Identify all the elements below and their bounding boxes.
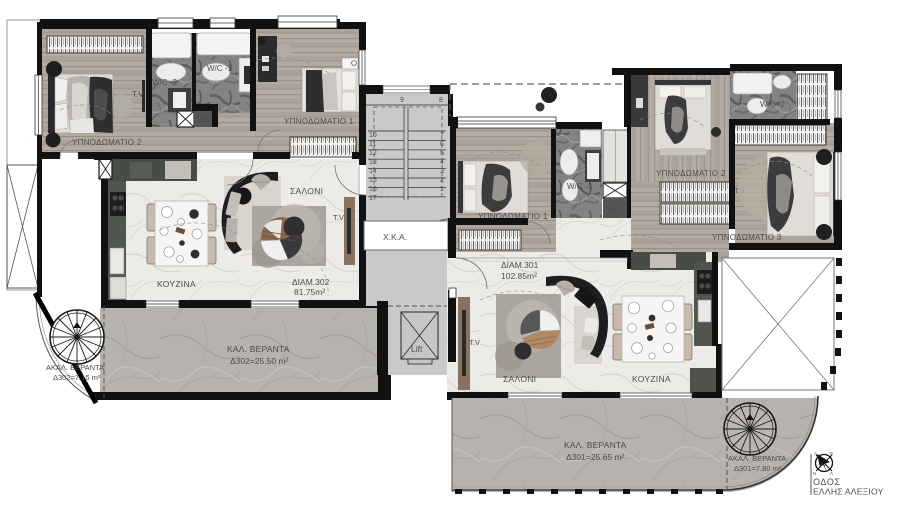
svg-text:ΥΠΝΟΔΩΜΑΤΙΟ 2: ΥΠΝΟΔΩΜΑΤΙΟ 2 — [656, 169, 726, 178]
svg-text:ΣΑΛΟΝΙ: ΣΑΛΟΝΙ — [503, 374, 536, 384]
svg-text:8: 8 — [439, 97, 443, 104]
svg-text:Lift: Lift — [411, 344, 423, 354]
svg-text:ΚΟΥΖΙΝΑ: ΚΟΥΖΙΝΑ — [632, 374, 671, 384]
svg-text:1: 1 — [440, 186, 444, 193]
svg-text:W.M: W.M — [198, 117, 211, 124]
svg-text:ΥΠΝΟΔΩΜΑΤΙΟ 1: ΥΠΝΟΔΩΜΑΤΙΟ 1 — [284, 117, 354, 126]
svg-text:W/C -2: W/C -2 — [760, 100, 785, 109]
svg-text:W/M: W/M — [607, 206, 620, 213]
svg-text:W/C -2: W/C -2 — [152, 78, 177, 87]
svg-text:ΔΙΑΜ.301: ΔΙΑΜ.301 — [501, 260, 539, 270]
svg-text:W/C -1: W/C -1 — [567, 182, 592, 191]
svg-text:14: 14 — [369, 168, 377, 175]
svg-text:10: 10 — [369, 132, 377, 139]
svg-text:W/C -1: W/C -1 — [207, 64, 232, 73]
svg-text:ΚΑΛ. ΒΕΡΑΝΤΑ: ΚΑΛ. ΒΕΡΑΝΤΑ — [564, 440, 627, 450]
svg-text:Δ302=25.50 m²: Δ302=25.50 m² — [230, 356, 289, 366]
svg-text:ΑΚΑΛ. ΒΕΡΑΝΤΑ: ΑΚΑΛ. ΒΕΡΑΝΤΑ — [728, 454, 786, 463]
svg-text:Χ.Κ.Α.: Χ.Κ.Α. — [383, 232, 407, 242]
svg-text:T.V: T.V — [333, 213, 344, 222]
svg-text:ΥΠΝΟΔΩΜΑΤΙΟ 3: ΥΠΝΟΔΩΜΑΤΙΟ 3 — [712, 233, 782, 242]
svg-text:Δ301=7.80 m²: Δ301=7.80 m² — [734, 464, 782, 473]
svg-text:B: B — [830, 451, 833, 456]
svg-text:T.V: T.V — [469, 338, 480, 347]
svg-text:3: 3 — [440, 168, 444, 175]
svg-text:81.75m²: 81.75m² — [294, 287, 325, 297]
svg-text:17: 17 — [369, 195, 377, 202]
svg-text:11: 11 — [369, 141, 376, 148]
svg-text:4: 4 — [440, 159, 444, 166]
svg-text:ΔΙΑΜ.302: ΔΙΑΜ.302 — [292, 277, 330, 287]
svg-text:15: 15 — [369, 177, 377, 184]
svg-text:Δ301=25.65 m²: Δ301=25.65 m² — [566, 452, 625, 462]
svg-text:ΑΚΑΛ. ΒΕΡΑΝΤΑ: ΑΚΑΛ. ΒΕΡΑΝΤΑ — [46, 363, 104, 372]
svg-text:5: 5 — [440, 150, 444, 157]
svg-text:12: 12 — [369, 150, 377, 157]
svg-text:102.85m²: 102.85m² — [501, 271, 537, 281]
svg-text:2: 2 — [440, 177, 444, 184]
svg-text:ΚΟΥΖΙΝΑ: ΚΟΥΖΙΝΑ — [157, 279, 196, 289]
svg-text:T.V: T.V — [132, 90, 144, 99]
svg-text:ΟΔΟΣ: ΟΔΟΣ — [813, 477, 841, 487]
svg-text:Δ302=7.15 m²: Δ302=7.15 m² — [53, 373, 101, 382]
svg-text:6: 6 — [440, 141, 444, 148]
svg-text:7: 7 — [440, 132, 444, 139]
svg-text:ΥΠΝΟΔΩΜΑΤΙΟ 2: ΥΠΝΟΔΩΜΑΤΙΟ 2 — [72, 138, 142, 147]
svg-text:ΣΑΛΟΝΙ: ΣΑΛΟΝΙ — [290, 186, 323, 196]
svg-text:9: 9 — [400, 97, 404, 104]
svg-text:16: 16 — [369, 186, 377, 193]
svg-text:ΕΛΛΗΣ ΑΛΕΞΙΟΥ: ΕΛΛΗΣ ΑΛΕΞΙΟΥ — [813, 487, 884, 497]
svg-text:N: N — [813, 471, 816, 476]
svg-text:ΚΑΛ. ΒΕΡΑΝΤΑ: ΚΑΛ. ΒΕΡΑΝΤΑ — [227, 344, 290, 354]
svg-text:13: 13 — [369, 159, 377, 166]
svg-text:A: A — [814, 451, 817, 456]
svg-text:Λ: Λ — [830, 471, 833, 476]
